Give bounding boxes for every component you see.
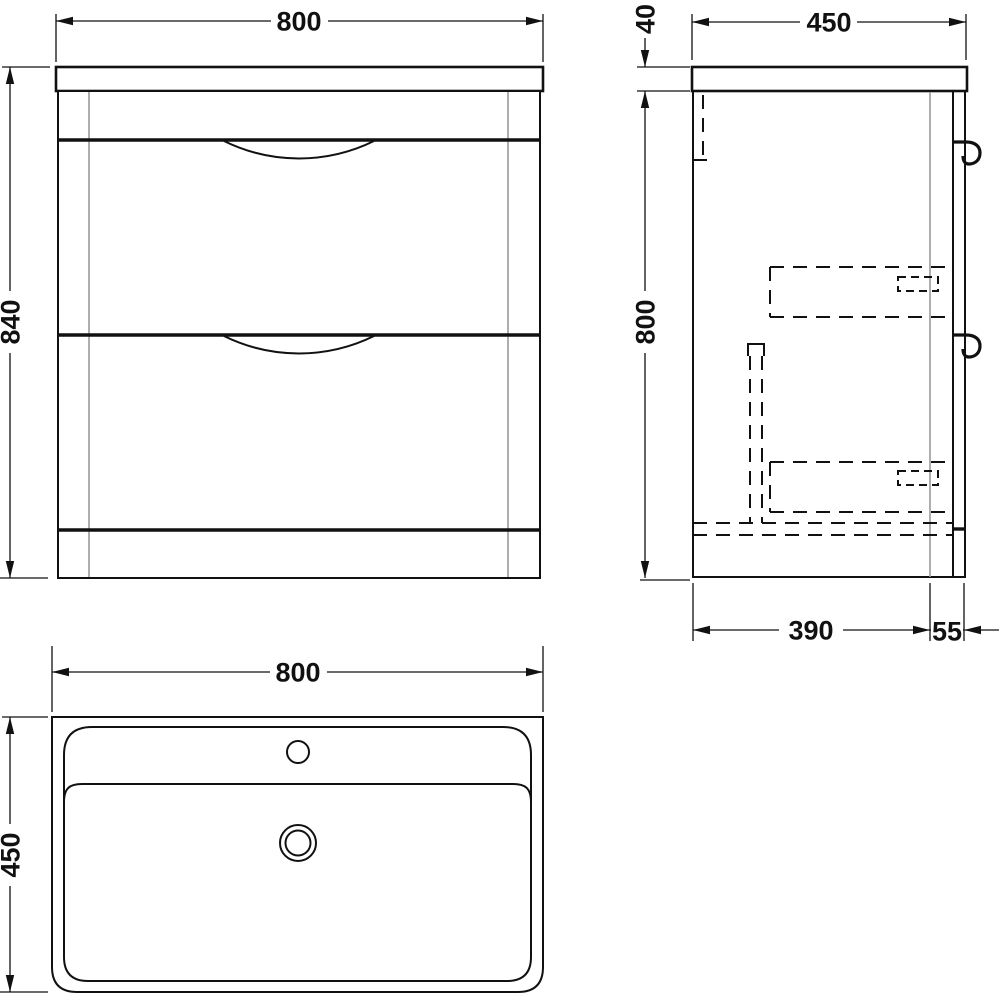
lower-drawer-handle <box>953 335 980 357</box>
base-depth-label: 390 <box>788 615 833 645</box>
basin-rim <box>64 727 531 981</box>
basin-depth-label: 450 <box>0 832 25 877</box>
basin-plan-view: 800 450 <box>0 646 543 992</box>
side-depth-label: 450 <box>806 7 851 37</box>
front-height-label: 840 <box>0 299 25 344</box>
side-top-label: 40 <box>630 4 660 34</box>
waste-pipe-cap-hidden <box>748 344 764 356</box>
side-view: 450 40 800 <box>630 2 999 646</box>
lower-drawer-runner-hidden <box>898 471 938 485</box>
upper-drawer-handle <box>953 142 980 164</box>
front-view: 800 840 <box>0 6 543 578</box>
front-countertop <box>56 67 543 91</box>
technical-drawing-canvas: 800 840 450 40 800 <box>0 0 1000 1000</box>
front-offset-label: 55 <box>932 616 962 646</box>
front-width-label: 800 <box>276 6 321 36</box>
side-height-label: 800 <box>630 299 660 344</box>
vanity-dimension-drawing: 800 840 450 40 800 <box>0 0 1000 1000</box>
side-countertop <box>692 67 967 91</box>
upper-drawer-runner-hidden <box>898 277 938 291</box>
basin-width-label: 800 <box>275 657 320 687</box>
